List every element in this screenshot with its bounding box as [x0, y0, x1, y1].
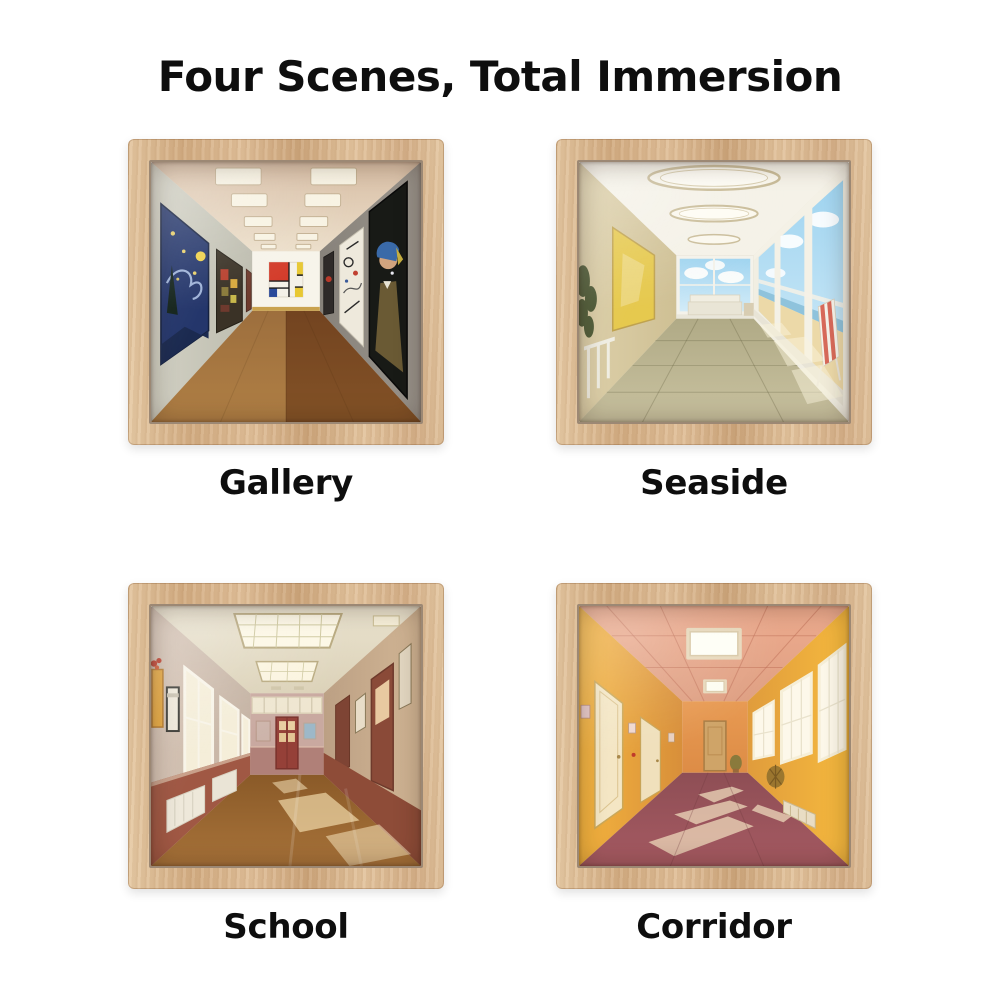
- wall-poster: [629, 723, 636, 733]
- gallery-wood-frame: [128, 139, 444, 445]
- scene-card-school: School: [128, 583, 444, 947]
- school-back-wall-details: [250, 697, 323, 774]
- back-plant: [730, 755, 742, 771]
- corridor-wood-frame: [556, 583, 872, 889]
- corridor-illustration: [579, 606, 849, 866]
- corridor-scene: [577, 604, 851, 868]
- small-painting-left: [246, 269, 251, 312]
- mondrian-painting: [269, 262, 303, 297]
- gallery-scene: [149, 160, 423, 424]
- scene-card-seaside: Seaside: [556, 139, 872, 503]
- seaside-wood-frame: [556, 139, 872, 445]
- scene-card-gallery: Gallery: [128, 139, 444, 503]
- framed-picture: [399, 644, 411, 709]
- wall-poster: [668, 733, 674, 742]
- seaside-scene: [577, 160, 851, 424]
- caption-seaside: Seaside: [640, 463, 788, 503]
- wall-poster: [581, 705, 590, 718]
- side-table: [744, 303, 754, 316]
- seaside-illustration: [579, 162, 849, 422]
- scene-grid: Gallery: [0, 139, 1000, 947]
- blue-poster: [304, 723, 316, 739]
- page-title: Four Scenes, Total Immersion: [0, 0, 1000, 101]
- school-wood-frame: [128, 583, 444, 889]
- small-painting-right: [324, 251, 334, 315]
- school-scene: [149, 604, 423, 868]
- school-illustration: [151, 606, 421, 866]
- caption-corridor: Corridor: [636, 907, 792, 947]
- gallery-illustration: [151, 162, 421, 422]
- notice-board: [256, 721, 270, 741]
- caption-gallery: Gallery: [219, 463, 353, 503]
- fire-alarm: [632, 753, 636, 757]
- gallery-baseboard: [252, 307, 320, 311]
- caption-school: School: [223, 907, 348, 947]
- scene-card-corridor: Corridor: [556, 583, 872, 947]
